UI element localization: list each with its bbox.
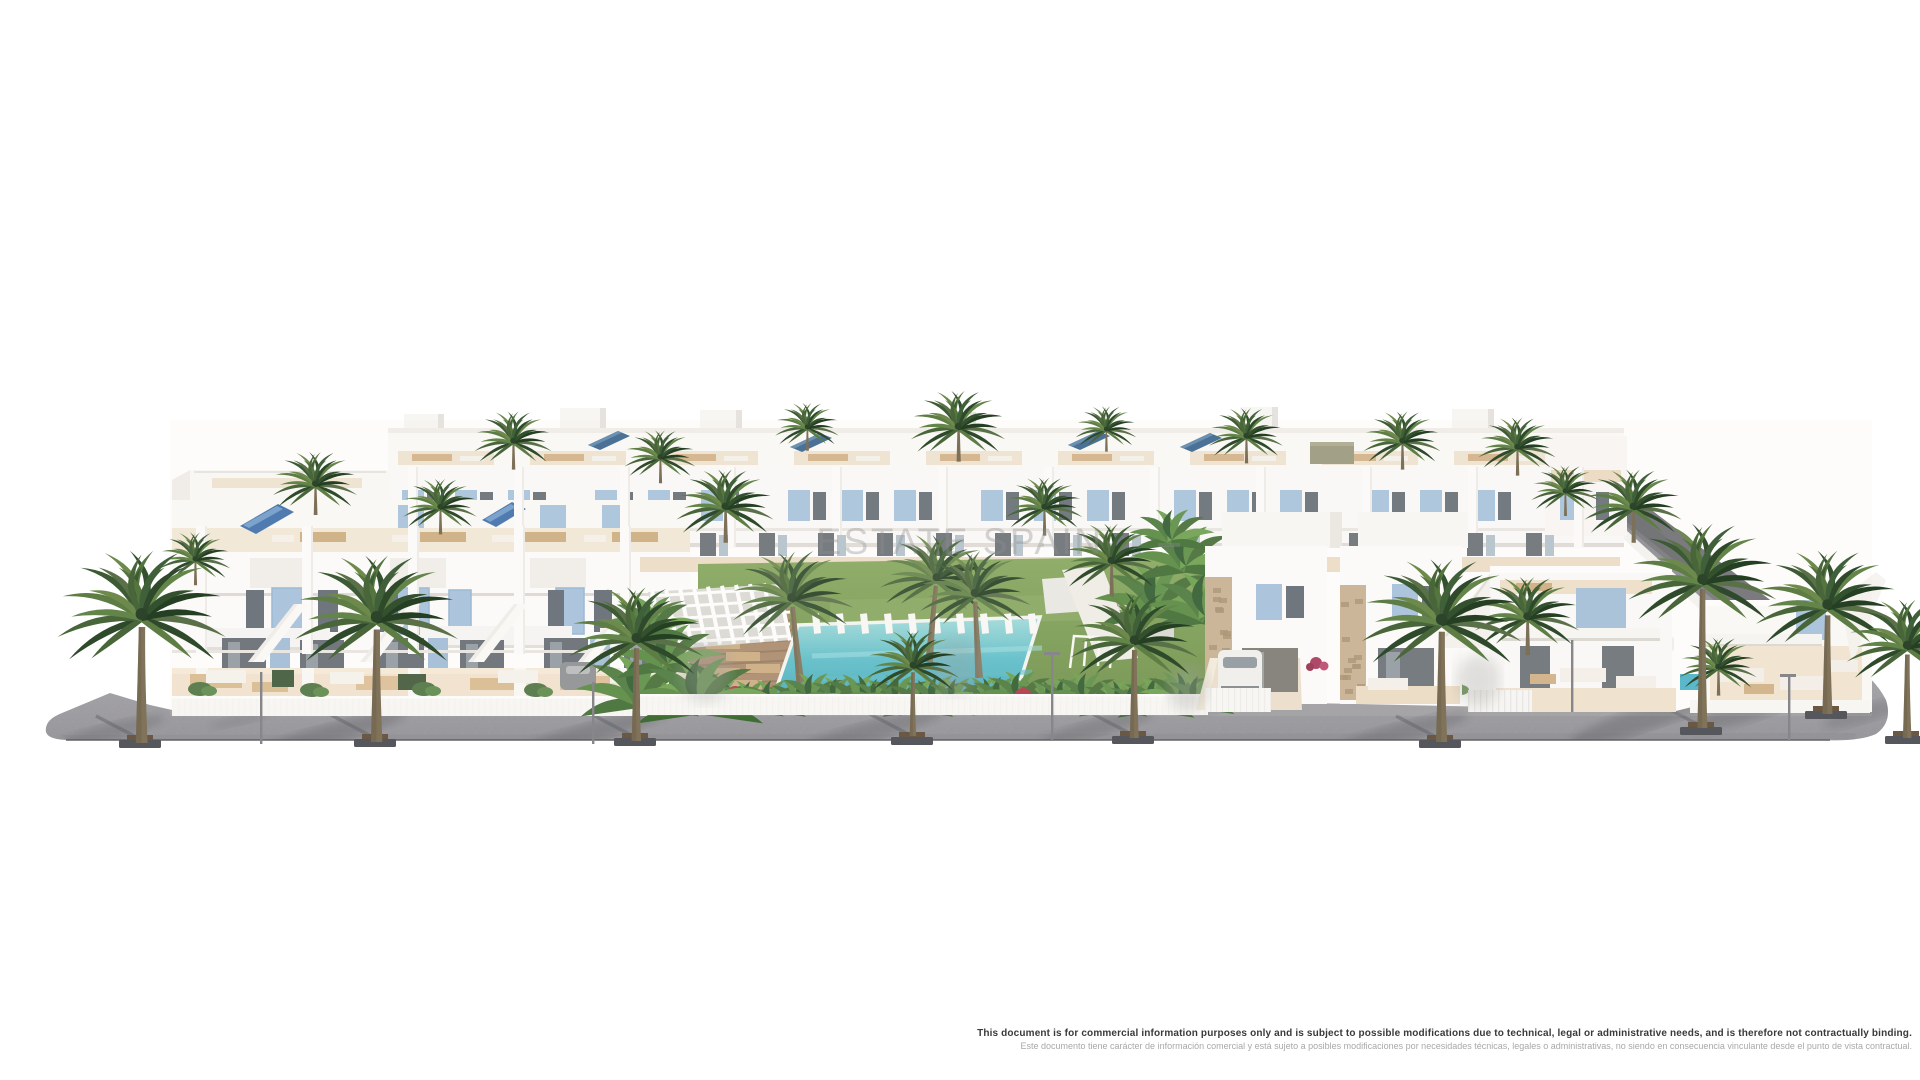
svg-text:ESTATE SPAIN: ESTATE SPAIN xyxy=(817,521,1104,562)
